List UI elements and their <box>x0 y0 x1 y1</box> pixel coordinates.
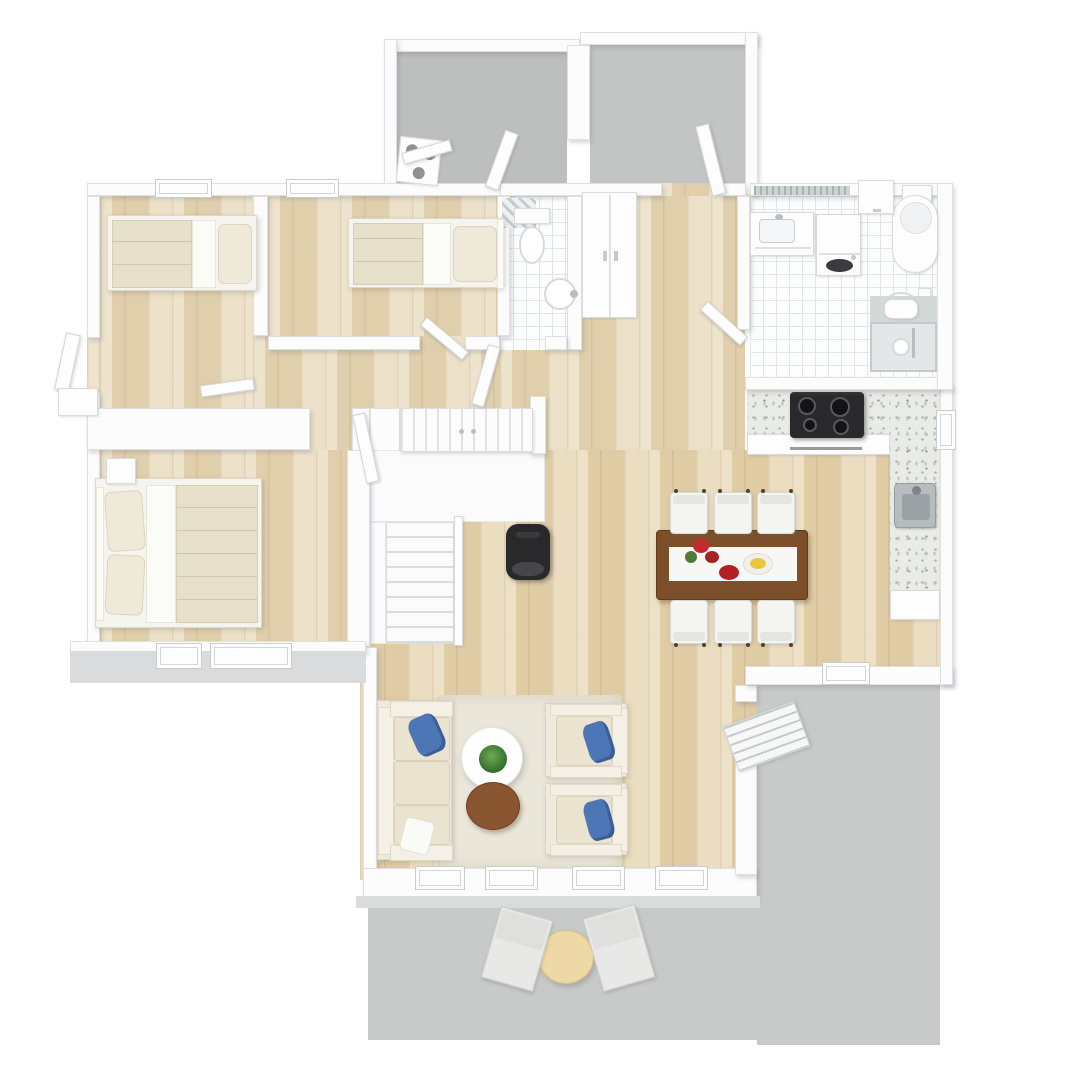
sink-basin <box>902 494 930 520</box>
wall-mid-left <box>87 408 310 450</box>
sink-faucet <box>912 486 921 495</box>
floor-plan-canvas <box>0 0 1080 1080</box>
living-window-2 <box>485 866 538 890</box>
flower-red-1 <box>693 539 709 553</box>
toilet-bowl <box>519 226 545 264</box>
master-sheet <box>146 485 176 623</box>
coffee-table-plant <box>479 745 507 773</box>
master-pillow-2 <box>104 554 145 616</box>
shower-pipe <box>912 328 915 358</box>
bench-top <box>884 299 918 319</box>
flower-red-2 <box>705 551 719 563</box>
stair-railing <box>454 516 463 646</box>
dining-chair-3 <box>757 492 795 534</box>
sofa-cushion-2 <box>394 761 450 805</box>
shower <box>870 322 937 372</box>
entry-room-floor <box>590 45 746 185</box>
washer-door <box>826 259 853 272</box>
vanity-drawer-line <box>755 247 811 249</box>
wood-stove <box>506 524 550 580</box>
toilet-tank <box>514 208 550 224</box>
cabinet-handle-2 <box>614 251 618 261</box>
coffee-table <box>461 727 523 789</box>
master-bed <box>95 478 262 628</box>
kitchen-sink <box>894 483 936 528</box>
bedroom1-bed <box>107 215 257 291</box>
master-window-1 <box>156 643 202 669</box>
closet-louvered-doors <box>400 408 533 452</box>
closet-handle-1 <box>459 429 464 434</box>
laundry-north-blind <box>754 186 850 195</box>
side-table <box>466 782 520 830</box>
wall-laundry-west <box>737 196 750 330</box>
washing-machine <box>816 214 861 276</box>
bedroom2-window <box>286 179 339 198</box>
bed2-mattress <box>353 223 423 285</box>
bed1-mattress <box>112 220 192 288</box>
stove-front-arc <box>512 562 544 576</box>
shower-bench <box>870 296 937 322</box>
bed2-headboard <box>497 219 504 289</box>
bed2-sheet <box>423 223 451 285</box>
wall-bathroom-south-stub <box>545 336 567 350</box>
living-window-4 <box>655 866 708 890</box>
wall-left-exterior-upper <box>87 196 100 338</box>
wall-entry-right <box>745 32 758 195</box>
wall-living-south-face <box>356 896 760 908</box>
armchair-1 <box>545 703 627 777</box>
bed2-pillow <box>453 226 497 282</box>
cabinet-door-split <box>609 195 611 317</box>
dining-table <box>656 530 808 600</box>
dining-chair-5 <box>714 600 752 644</box>
burner-1 <box>798 397 816 415</box>
living-window-3 <box>572 866 625 890</box>
master-pillow-1 <box>104 490 146 553</box>
wall-gray-rooms-divider <box>567 45 590 140</box>
armchair1-arm-bottom <box>550 766 622 778</box>
master-mattress <box>176 485 258 623</box>
armchair-2 <box>545 783 627 855</box>
bed1-sheet <box>192 220 216 288</box>
bathroom-sink <box>544 276 580 314</box>
wall-bathroom-east <box>567 196 582 350</box>
shower-drain <box>892 338 910 356</box>
armchair2-back <box>612 788 628 852</box>
sink-faucet-dot <box>570 290 578 298</box>
vanity-faucet <box>775 214 783 220</box>
hall-tall-cabinet <box>582 192 637 318</box>
dining-chair-2 <box>714 492 752 534</box>
heater-top <box>900 202 932 234</box>
wall-kitchen-north <box>745 377 940 390</box>
flower-green <box>685 551 697 563</box>
burner-2 <box>830 397 850 417</box>
bathroom-toilet <box>514 208 552 268</box>
sofa <box>377 700 452 860</box>
stair-west-strip <box>370 522 386 644</box>
fruit-bowl-red <box>719 565 739 580</box>
dining-chair-4 <box>670 600 708 644</box>
armchair1-back <box>612 708 628 774</box>
wall-living-east-top <box>735 685 757 702</box>
wall-storage-top <box>384 39 580 52</box>
cooktop <box>790 392 864 438</box>
closet-handle-2 <box>471 429 476 434</box>
wall-bedroom2-south-left <box>268 336 420 350</box>
dining-chair-1 <box>670 492 708 534</box>
master-window-2 <box>210 643 292 669</box>
armchair1-arm-top <box>550 704 622 716</box>
bedroom1-window <box>155 179 212 198</box>
stove-vent <box>516 532 540 538</box>
master-nightstand <box>106 458 136 484</box>
staircase <box>386 522 454 644</box>
stair-landing <box>370 450 545 522</box>
armchair2-arm-bottom <box>550 844 622 856</box>
cabinet-handle-1 <box>603 251 607 261</box>
burner-3 <box>803 418 817 432</box>
laundry-wall-cabinet <box>858 180 894 214</box>
master-headboard <box>96 487 104 621</box>
exterior-door-left <box>54 332 81 392</box>
bed1-pillow <box>218 224 252 284</box>
wall-bath-entry-top <box>500 183 662 196</box>
wall-entry-top <box>580 32 758 45</box>
bedroom2-bed <box>348 218 503 288</box>
washer-knob <box>851 255 856 260</box>
burner-4 <box>833 419 849 435</box>
wall-living-east-bottom <box>735 760 757 875</box>
kitchen-oven-handle <box>790 447 862 450</box>
sofa-back <box>378 707 394 855</box>
vanity-basin <box>759 219 795 243</box>
bedroom1-door-threshold <box>87 338 100 392</box>
appliance-dot-3 <box>412 166 425 179</box>
exterior-door-step <box>58 388 98 416</box>
fruit-yellow <box>750 558 766 569</box>
wall-storage-left <box>384 39 397 185</box>
wall-living-west <box>363 647 377 900</box>
wall-closet-west <box>370 408 400 452</box>
kitchen-east-window <box>936 410 956 450</box>
dining-chair-6 <box>757 600 795 644</box>
laundry-vanity <box>750 212 814 256</box>
armchair2-arm-top <box>550 784 622 796</box>
wall-cabinet-handle <box>873 209 881 212</box>
living-window-1 <box>415 866 465 890</box>
wall-laundry-east <box>937 183 953 390</box>
patio-wall-window <box>822 662 870 685</box>
kitchen-counter-east-front <box>890 590 940 620</box>
water-heater <box>892 195 938 273</box>
